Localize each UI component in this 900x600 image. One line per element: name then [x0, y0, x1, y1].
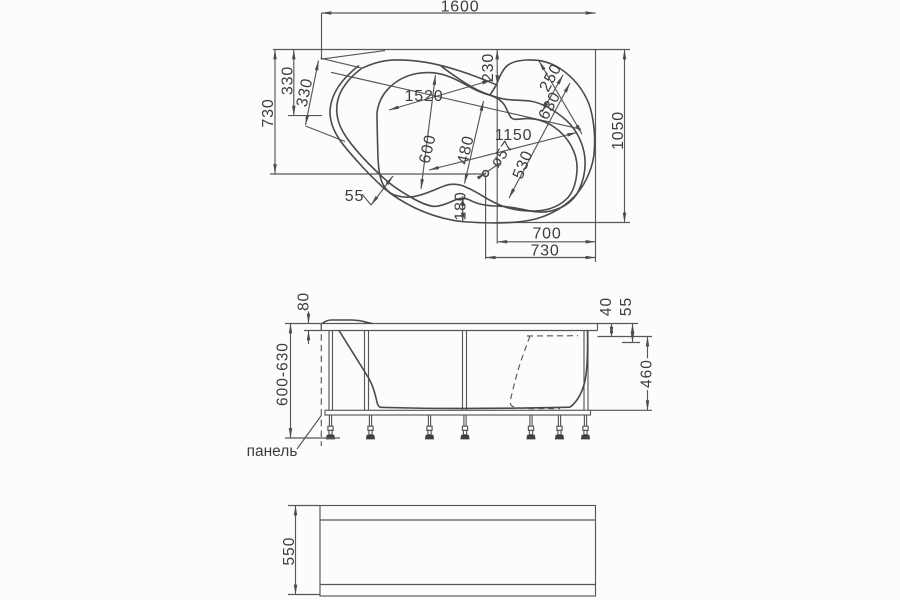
svg-text:460: 460	[639, 359, 656, 388]
svg-text:700: 700	[532, 226, 561, 243]
svg-text:40: 40	[598, 297, 615, 316]
svg-text:панель: панель	[247, 443, 298, 460]
svg-text:80: 80	[296, 292, 313, 311]
svg-text:730: 730	[530, 243, 559, 260]
svg-text:55: 55	[618, 297, 635, 316]
svg-text:230: 230	[480, 53, 497, 82]
svg-text:600-630: 600-630	[275, 342, 292, 406]
svg-text:1050: 1050	[610, 111, 627, 150]
svg-text:550: 550	[281, 537, 298, 566]
svg-text:730: 730	[260, 98, 277, 127]
svg-text:1520: 1520	[405, 88, 444, 105]
svg-text:55: 55	[345, 188, 364, 205]
svg-text:1600: 1600	[441, 0, 480, 16]
svg-text:180: 180	[453, 191, 470, 220]
svg-text:330: 330	[280, 66, 297, 95]
